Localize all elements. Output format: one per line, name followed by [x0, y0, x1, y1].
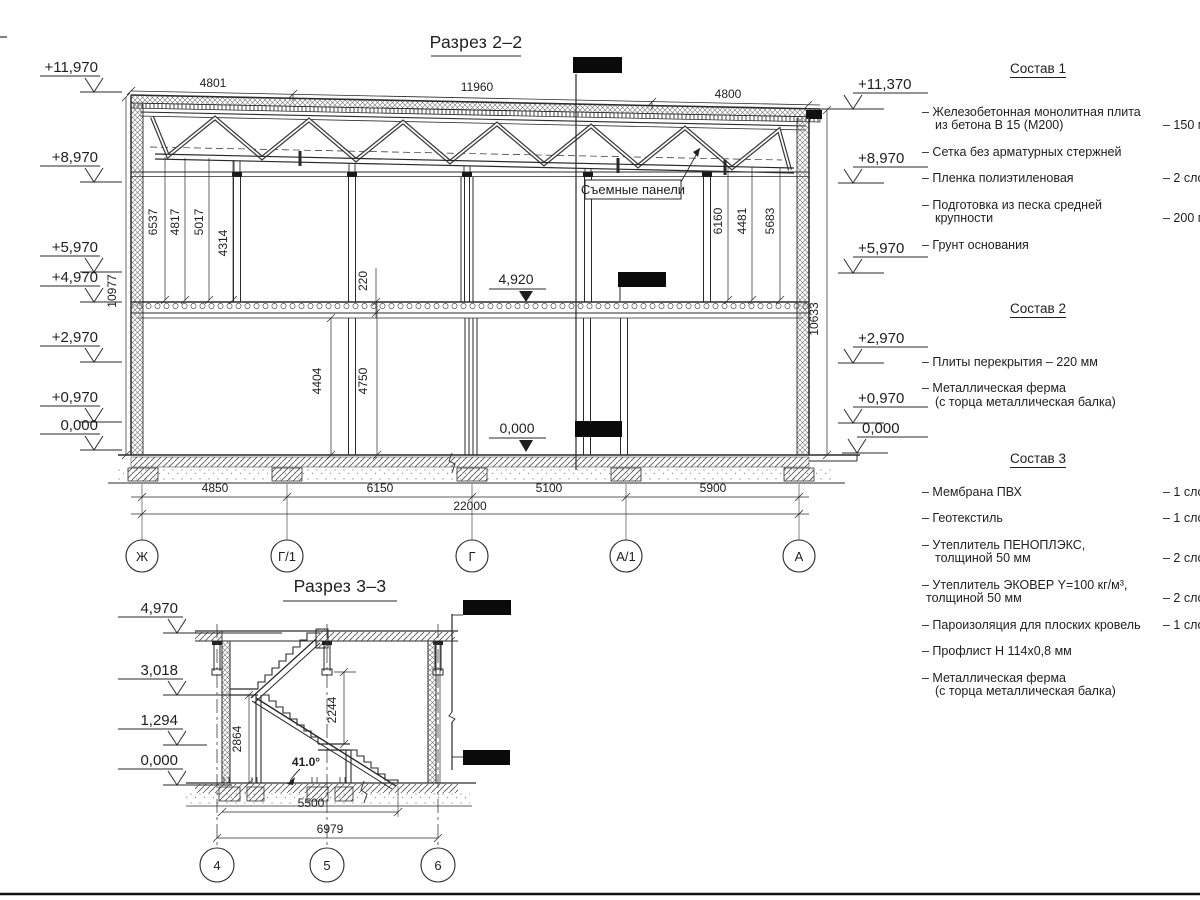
- svg-text:0,000: 0,000: [499, 420, 534, 436]
- redaction-box: [575, 421, 622, 437]
- ground-foundation: [108, 453, 860, 483]
- interior-dimensions: 220 4404 4750: [310, 268, 381, 459]
- spec-item: – Грунт основания: [918, 239, 1200, 253]
- axis-label: 6: [434, 858, 441, 873]
- level-mark-0000: 0,000: [489, 420, 546, 452]
- svg-text:6150: 6150: [367, 481, 394, 495]
- roof-truss: [150, 117, 794, 175]
- axis-label: Г: [468, 549, 475, 564]
- svg-text:0,000: 0,000: [60, 417, 98, 434]
- floor-slab: [131, 302, 809, 318]
- svg-text:11960: 11960: [461, 80, 494, 94]
- composition-2: Состав 2 – Плиты перекрытия – 220 мм – М…: [918, 302, 1200, 422]
- axis-label: 5: [323, 858, 330, 873]
- bottom-dimension-chains: 4850 6150 5100 5900 22000: [131, 481, 809, 540]
- svg-text:+2,970: +2,970: [858, 330, 904, 347]
- svg-text:6537: 6537: [146, 208, 160, 235]
- spec-item: – Профлист Н 114х0,8 мм: [918, 645, 1200, 659]
- drawing-sheet: Разрез 2–2: [0, 0, 1200, 900]
- spec-value: – 1 слой: [1163, 486, 1200, 500]
- svg-text:4801: 4801: [200, 76, 227, 90]
- spec-item: – Утеплитель ЭКОВЕР Y=100 кг/м³, толщино…: [918, 579, 1200, 606]
- elevation-marks-right: +11,370 +8,970 +5,970 +2,970 +0,970 0,00…: [820, 76, 928, 453]
- spec-item: – Пленка полиэтиленовая – 2 слоя: [918, 172, 1200, 186]
- svg-text:5017: 5017: [192, 208, 206, 235]
- svg-text:4481: 4481: [735, 207, 749, 234]
- section-3-3: Разрез 3–3: [118, 576, 511, 882]
- svg-text:10977: 10977: [105, 274, 119, 308]
- section-2-2-title: Разрез 2–2: [430, 32, 523, 52]
- spec-item: – Металлическая ферма (с торца металличе…: [918, 382, 1200, 409]
- svg-text:0,000: 0,000: [140, 752, 178, 769]
- composition-1-title: Состав 1: [918, 62, 1158, 76]
- svg-text:+11,970: +11,970: [44, 59, 98, 76]
- spec-item: – Сетка без арматурных стержней: [918, 146, 1200, 160]
- ceiling-slab: [195, 629, 458, 648]
- svg-text:220: 220: [356, 271, 370, 291]
- spec-value: – 2 слоя: [1163, 172, 1200, 186]
- svg-text:22000: 22000: [453, 499, 487, 513]
- svg-text:+8,970: +8,970: [858, 150, 904, 167]
- svg-text:+8,970: +8,970: [52, 149, 98, 166]
- chord-dimensions-right: 6160 4481 5683: [711, 166, 784, 304]
- svg-text:5500: 5500: [298, 796, 325, 810]
- spec-item: – Металлическая ферма (с торца металличе…: [918, 672, 1200, 699]
- svg-text:2244: 2244: [325, 696, 339, 723]
- spec-item: – Плиты перекрытия – 220 мм: [918, 356, 1200, 370]
- spec-value: – 150 мм: [1163, 119, 1200, 133]
- spec-value: – 2 слоя: [1163, 592, 1200, 606]
- stair-angle: 41.0°: [292, 755, 320, 769]
- axis-label: Г/1: [278, 549, 296, 564]
- svg-text:+4,970: +4,970: [52, 269, 98, 286]
- stair-dimensions: 2864 2244 41.0° 5500 6979: [213, 668, 442, 842]
- svg-text:10633: 10633: [807, 302, 821, 336]
- spec-value: – 2 слоя: [1163, 552, 1200, 566]
- svg-text:+2,970: +2,970: [52, 329, 98, 346]
- svg-text:4817: 4817: [168, 208, 182, 235]
- panels-label: Съемные панели: [581, 182, 685, 197]
- svg-text:4850: 4850: [202, 481, 229, 495]
- cut-line-3: [449, 600, 511, 770]
- svg-text:5900: 5900: [700, 481, 727, 495]
- section-2-2: Разрез 2–2: [0, 32, 928, 572]
- svg-text:4404: 4404: [310, 367, 324, 394]
- svg-text:1,294: 1,294: [140, 712, 178, 729]
- composition-3: Состав 3 – Мембрана ПВХ – 1 слой – Геоте…: [918, 452, 1200, 712]
- spec-item: – Мембрана ПВХ – 1 слой: [918, 486, 1200, 500]
- svg-text:4,970: 4,970: [140, 600, 178, 617]
- svg-text:+0,970: +0,970: [858, 390, 904, 407]
- svg-text:+0,970: +0,970: [52, 389, 98, 406]
- svg-text:2864: 2864: [230, 725, 244, 752]
- svg-text:4800: 4800: [715, 87, 742, 101]
- axis-bubbles: Ж Г/1 Г А/1 А: [126, 540, 815, 572]
- section-3-3-title: Разрез 3–3: [294, 576, 387, 596]
- composition-2-title: Состав 2: [918, 302, 1158, 316]
- redaction-box: [463, 600, 511, 615]
- spec-item: – Подготовка из песка средней крупности …: [918, 199, 1200, 226]
- level-mark-4920: 4,920: [489, 271, 546, 302]
- stair-axis-bubbles: 4 5 6: [200, 848, 455, 882]
- spec-item: – Железобетонная монолитная плита из бет…: [918, 106, 1200, 133]
- spec-item: – Утеплитель ПЕНОПЛЭКС, толщиной 50 мм –…: [918, 539, 1200, 566]
- axis-label: А: [795, 549, 804, 564]
- spec-value: – 1 слой: [1163, 619, 1200, 633]
- svg-text:+11,370: +11,370: [858, 76, 912, 93]
- svg-text:4314: 4314: [216, 229, 230, 256]
- svg-text:6160: 6160: [711, 207, 725, 234]
- svg-text:5100: 5100: [536, 481, 563, 495]
- svg-text:6979: 6979: [317, 822, 344, 836]
- svg-text:4750: 4750: [356, 367, 370, 394]
- svg-text:+5,970: +5,970: [52, 239, 98, 256]
- spec-item: – Геотекстиль – 1 слой: [918, 512, 1200, 526]
- composition-1: Состав 1 – Железобетонная монолитная пли…: [918, 62, 1200, 265]
- composition-3-title: Состав 3: [918, 452, 1158, 466]
- svg-text:4,920: 4,920: [498, 271, 533, 287]
- elevation-marks-left: +11,970 +8,970 +5,970 +4,970 +2,970 +0,9…: [40, 59, 122, 450]
- redaction-box: [618, 272, 666, 287]
- redaction-box: [573, 57, 622, 73]
- spec-item: – Пароизоляция для плоских кровель – 1 с…: [918, 619, 1200, 633]
- svg-text:+5,970: +5,970: [858, 240, 904, 257]
- redaction-box: [463, 750, 510, 765]
- svg-text:5683: 5683: [763, 207, 777, 234]
- axis-label: Ж: [136, 549, 148, 564]
- axis-label: А/1: [616, 549, 636, 564]
- chord-dimensions-left: 6537 4817 5017 4314: [146, 157, 237, 304]
- panels-callout: Съемные панели: [581, 148, 700, 199]
- axis-label: 4: [213, 858, 220, 873]
- spec-value: – 200 мм: [1163, 212, 1200, 226]
- svg-text:0,000: 0,000: [862, 420, 900, 437]
- svg-text:3,018: 3,018: [140, 662, 178, 679]
- spec-value: – 1 слой: [1163, 512, 1200, 526]
